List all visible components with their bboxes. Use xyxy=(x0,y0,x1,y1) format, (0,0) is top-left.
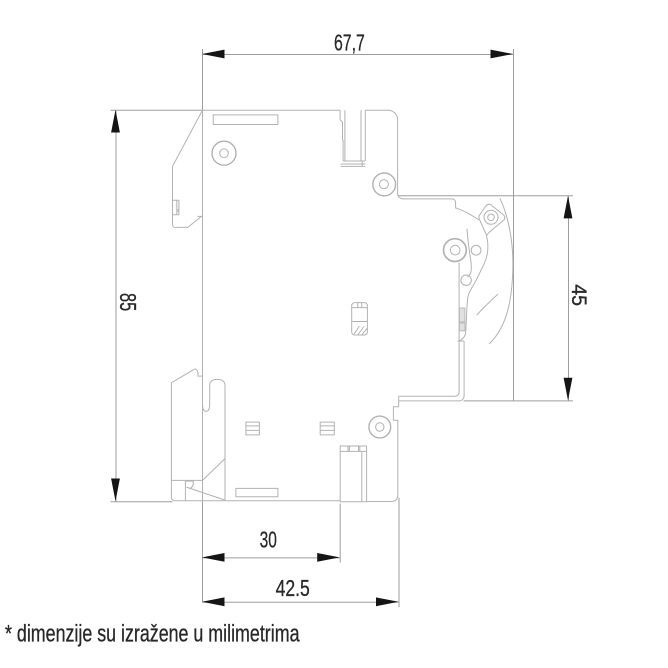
svg-text:42.5: 42.5 xyxy=(276,575,310,601)
svg-text:85: 85 xyxy=(115,293,141,311)
svg-text:67,7: 67,7 xyxy=(334,30,365,56)
svg-text:30: 30 xyxy=(260,527,277,553)
svg-text:* dimenzije su izražene u mili: * dimenzije su izražene u milimetrima xyxy=(5,621,300,648)
svg-text:45: 45 xyxy=(567,284,591,306)
